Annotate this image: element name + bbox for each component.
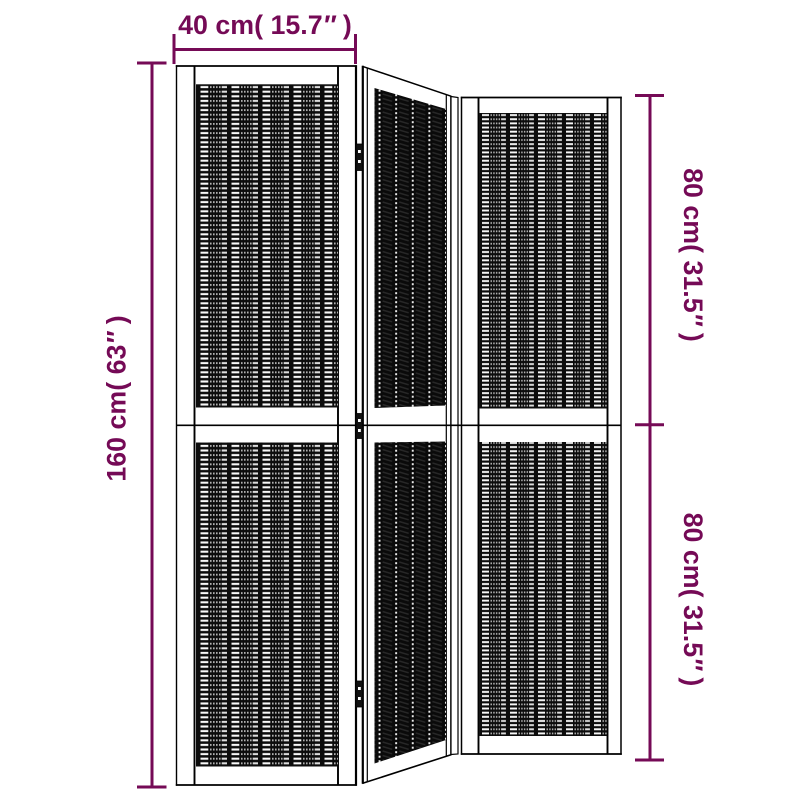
svg-text:40 cm( 15.7″ ): 40 cm( 15.7″ ) [178,10,352,40]
svg-text:160 cm( 63″ ): 160 cm( 63″ ) [102,315,132,481]
svg-text:80 cm( 31.5″ ): 80 cm( 31.5″ ) [678,513,708,687]
svg-text:80 cm( 31.5″ ): 80 cm( 31.5″ ) [678,168,708,342]
